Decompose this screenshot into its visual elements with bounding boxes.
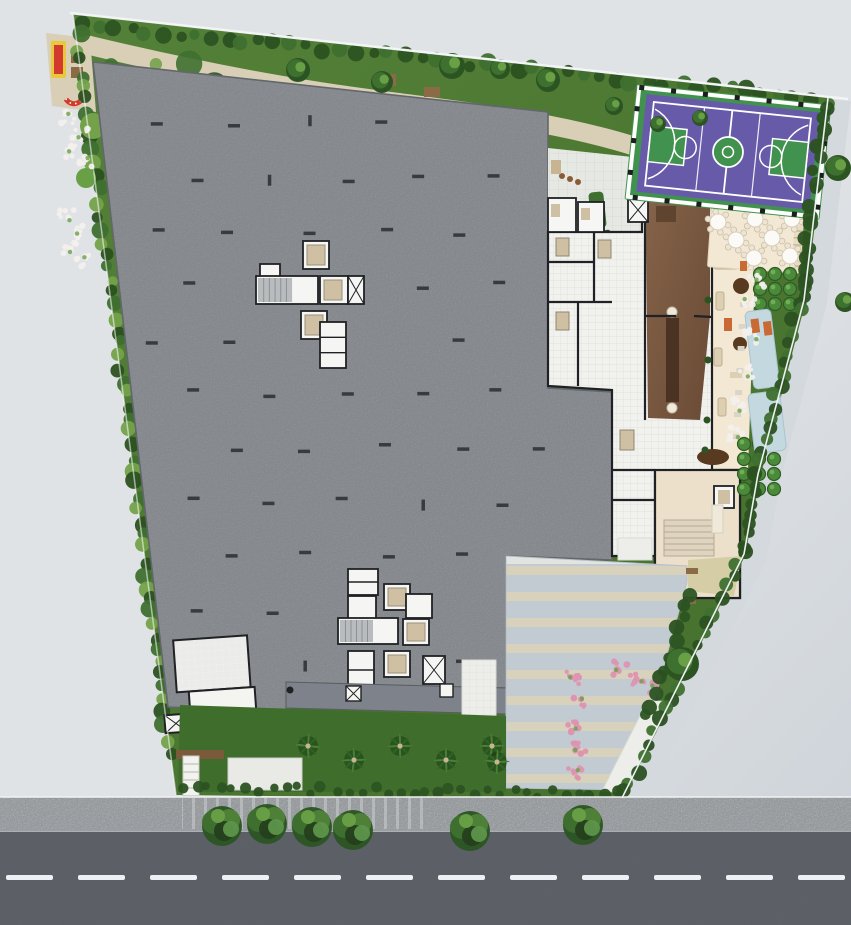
sofa-white <box>712 505 723 533</box>
bathroom-fixture <box>581 208 590 220</box>
lobby-counter <box>666 318 679 402</box>
plant-tub <box>705 357 712 364</box>
walk-pad <box>618 538 652 560</box>
plant-tub <box>704 417 711 424</box>
terrace-lounger <box>551 160 561 174</box>
canopy-column <box>287 687 294 694</box>
pool-lounger <box>763 321 773 336</box>
spa-bed <box>556 312 569 330</box>
accent-chair <box>724 318 732 331</box>
site-plan <box>0 0 851 925</box>
street <box>0 797 851 925</box>
service-room-fill <box>173 635 250 692</box>
accent-chair <box>740 261 747 271</box>
palm-lawn-strip <box>178 705 506 792</box>
plant-tub <box>702 447 709 454</box>
sofa <box>714 348 722 366</box>
round-table-dark <box>733 278 749 294</box>
road-noise <box>0 832 851 925</box>
terrace-pot <box>575 179 581 185</box>
terrace-pot <box>567 176 573 182</box>
plant-tub <box>705 297 712 304</box>
canopy-skylight <box>440 684 453 697</box>
entry-stairs <box>664 520 714 556</box>
spa-bed <box>598 240 611 258</box>
floor-elevator <box>628 198 648 222</box>
bathroom-fixture <box>551 204 560 217</box>
sofa <box>718 398 726 416</box>
play-mat <box>54 45 63 74</box>
path-bench <box>424 87 440 97</box>
party-room-table <box>656 206 676 222</box>
site-plan-canvas <box>0 0 851 925</box>
basketball-court <box>624 84 831 220</box>
sofa <box>716 292 724 310</box>
spa-bed <box>556 238 569 256</box>
counter-seat <box>667 403 677 413</box>
spa-bed <box>620 430 634 450</box>
